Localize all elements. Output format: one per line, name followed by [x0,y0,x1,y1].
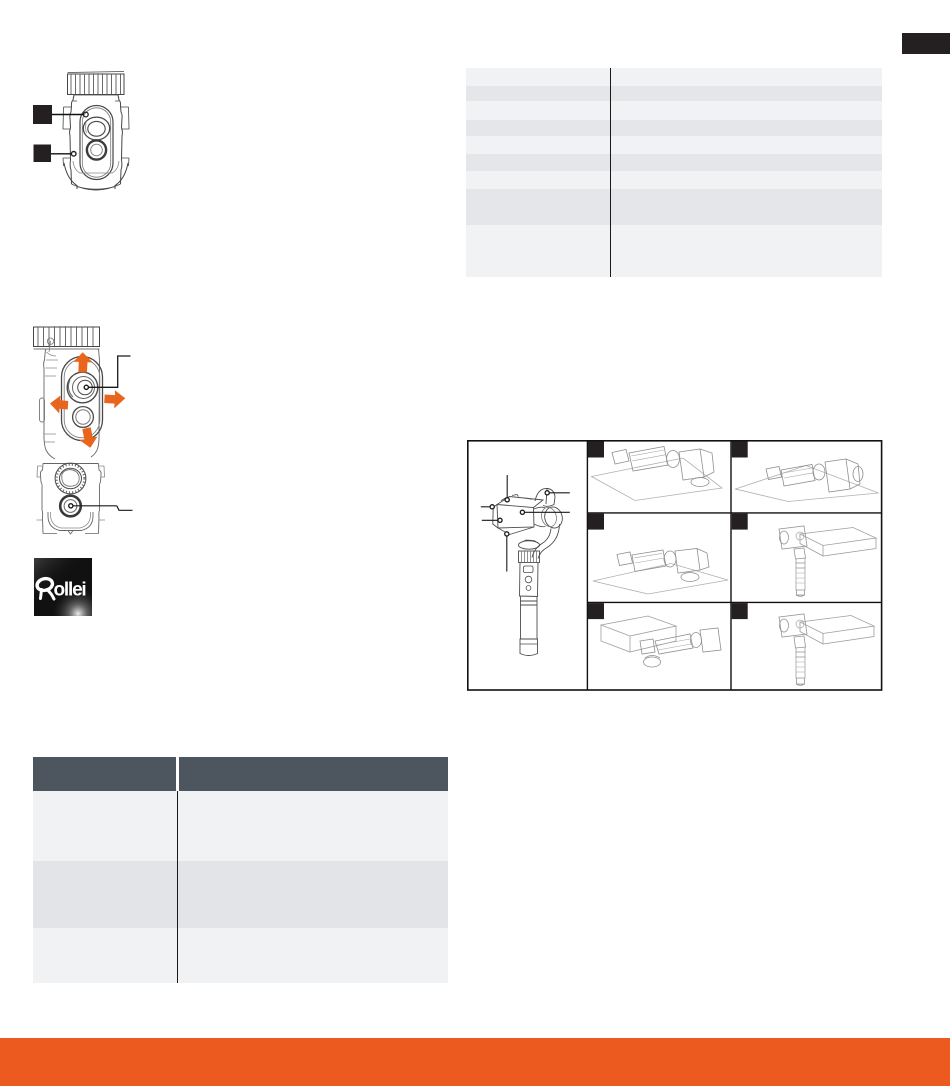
svg-text:ollei: ollei [54,580,86,601]
